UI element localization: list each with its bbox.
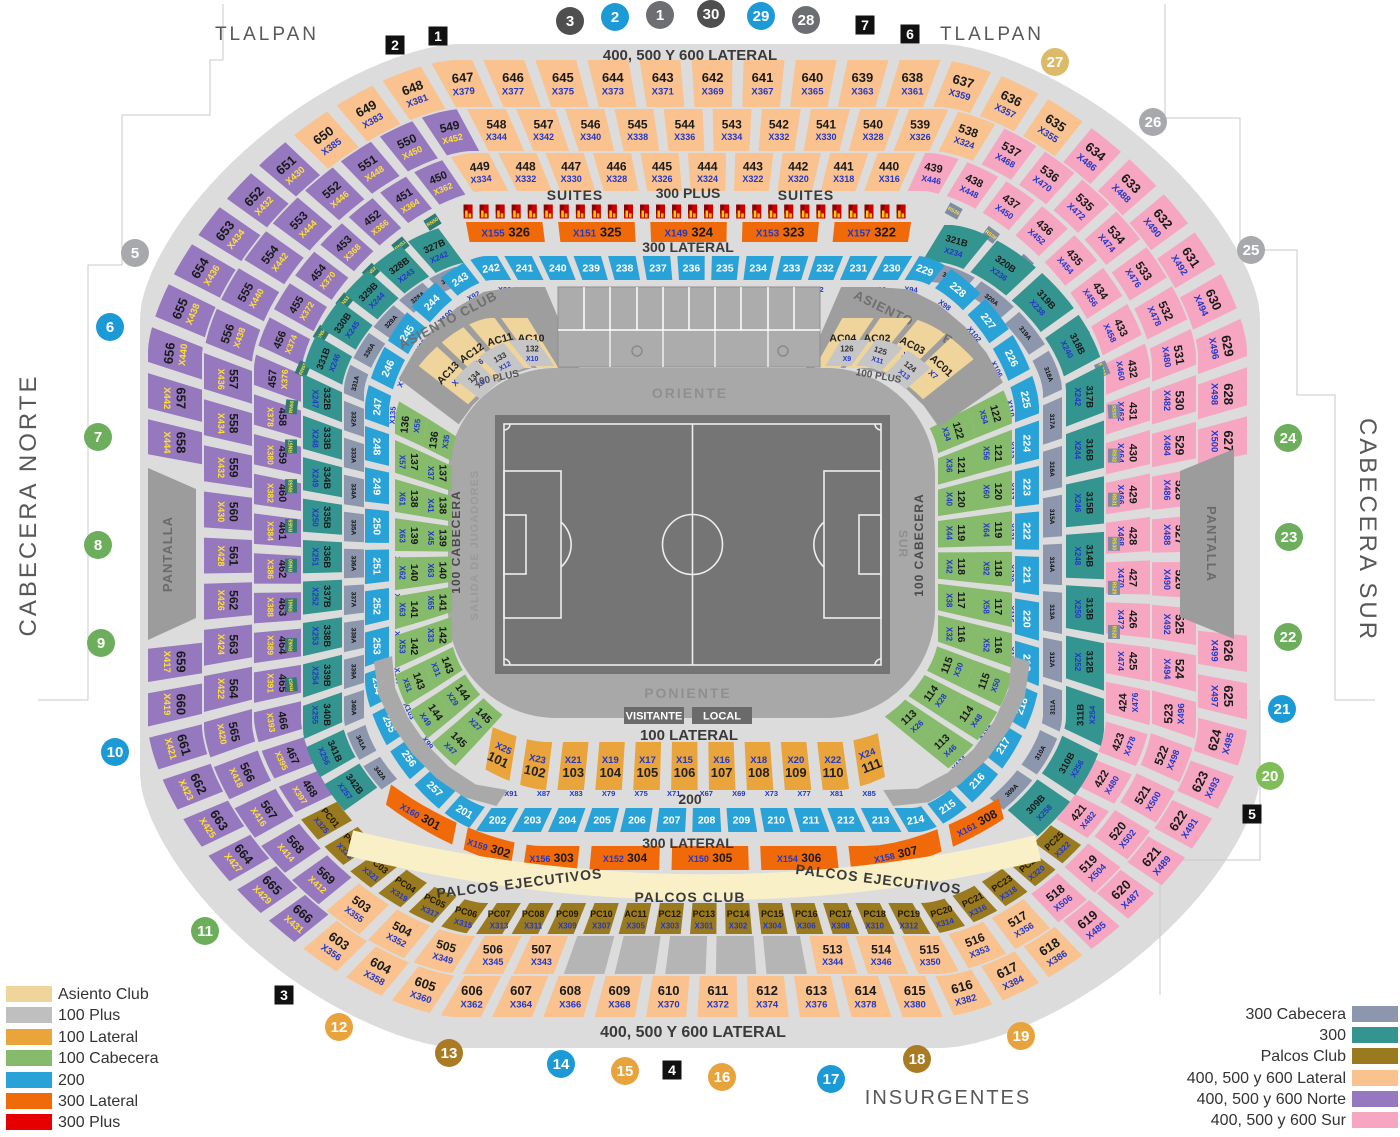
svg-text:X492: X492 [1162, 614, 1172, 635]
svg-text:X490: X490 [1162, 569, 1172, 590]
svg-text:2: 2 [611, 9, 619, 26]
svg-text:426: 426 [1127, 610, 1139, 628]
svg-text:X246: X246 [1073, 494, 1082, 513]
svg-text:RS33: RS33 [1110, 405, 1117, 418]
svg-text:X55: X55 [412, 418, 423, 434]
svg-text:PALCOS CLUB: PALCOS CLUB [634, 889, 745, 905]
svg-text:X362: X362 [460, 999, 482, 1011]
svg-text:X336: X336 [674, 132, 695, 142]
svg-text:X364: X364 [510, 1000, 533, 1011]
svg-text:CABECERA NORTE: CABECERA NORTE [15, 374, 42, 637]
svg-text:X367: X367 [751, 87, 773, 98]
svg-text:X328: X328 [606, 174, 627, 184]
svg-text:249: 249 [370, 478, 382, 496]
svg-text:X308: X308 [831, 922, 850, 931]
svg-text:140: 140 [437, 562, 449, 580]
svg-text:400, 500 y 600 Sur: 400, 500 y 600 Sur [1211, 1112, 1347, 1129]
svg-text:210: 210 [767, 815, 785, 827]
svg-text:3: 3 [280, 987, 288, 1003]
svg-text:X322: X322 [742, 174, 763, 184]
svg-text:233: 233 [783, 263, 801, 275]
svg-text:20: 20 [1262, 768, 1279, 785]
svg-text:PC15: PC15 [761, 909, 784, 919]
svg-text:440: 440 [879, 160, 899, 174]
svg-text:540: 540 [863, 118, 883, 132]
svg-text:608: 608 [559, 983, 581, 998]
svg-text:314A: 314A [1048, 557, 1055, 573]
svg-text:X37: X37 [426, 466, 435, 481]
svg-text:544: 544 [675, 118, 695, 132]
svg-text:106: 106 [674, 765, 696, 780]
svg-text:224: 224 [1020, 435, 1032, 453]
svg-text:X306: X306 [797, 922, 816, 931]
svg-text:X488: X488 [1162, 524, 1172, 545]
svg-text:507: 507 [531, 943, 551, 957]
svg-text:547: 547 [533, 118, 553, 132]
svg-text:314B: 314B [1084, 545, 1095, 568]
svg-text:X85: X85 [862, 789, 875, 798]
svg-text:X384: X384 [266, 521, 276, 541]
svg-text:X44: X44 [945, 526, 954, 541]
svg-text:339A: 339A [350, 664, 357, 680]
svg-text:X77: X77 [797, 789, 810, 798]
svg-text:300: 300 [1319, 1027, 1346, 1044]
svg-text:223: 223 [1020, 478, 1032, 496]
svg-text:333A: 333A [350, 448, 357, 464]
svg-text:542: 542 [769, 118, 789, 132]
svg-text:109: 109 [785, 765, 807, 780]
svg-text:X330: X330 [561, 174, 582, 184]
svg-text:X92: X92 [982, 561, 991, 576]
svg-text:222: 222 [1020, 522, 1032, 540]
svg-text:200: 200 [58, 1072, 85, 1089]
svg-text:X302: X302 [729, 922, 748, 931]
svg-text:427: 427 [1127, 569, 1139, 587]
svg-text:X81: X81 [830, 789, 843, 798]
svg-text:231: 231 [850, 263, 868, 275]
svg-text:431: 431 [1127, 402, 1139, 420]
svg-text:221: 221 [1020, 566, 1032, 584]
svg-text:X247: X247 [311, 390, 320, 409]
svg-text:X436: X436 [216, 369, 226, 390]
svg-text:136: 136 [398, 415, 412, 434]
svg-text:X250: X250 [311, 508, 320, 527]
svg-text:X53: X53 [398, 639, 407, 654]
svg-text:2: 2 [391, 37, 399, 53]
svg-text:X375: X375 [552, 87, 575, 98]
svg-text:7: 7 [861, 17, 869, 33]
svg-text:445: 445 [652, 160, 672, 174]
svg-text:247: 247 [371, 397, 385, 416]
svg-text:X342: X342 [533, 132, 554, 142]
svg-text:643: 643 [652, 70, 674, 85]
svg-text:232: 232 [816, 263, 834, 275]
svg-text:X330: X330 [815, 132, 836, 142]
svg-text:312B: 312B [1084, 651, 1095, 674]
svg-text:PC08: PC08 [522, 909, 545, 919]
svg-text:300 LATERAL: 300 LATERAL [642, 835, 734, 851]
svg-text:X332: X332 [515, 174, 536, 184]
svg-text:657: 657 [174, 387, 189, 409]
svg-text:24: 24 [1280, 430, 1297, 447]
svg-text:12: 12 [331, 1019, 348, 1036]
svg-text:28: 28 [798, 12, 815, 29]
svg-text:PONIENTE: PONIENTE [644, 685, 732, 701]
svg-text:235: 235 [716, 263, 734, 275]
svg-text:563: 563 [227, 634, 241, 654]
svg-text:PC12: PC12 [658, 909, 681, 919]
svg-text:449: 449 [469, 159, 491, 175]
svg-text:626: 626 [1221, 640, 1236, 662]
svg-text:116: 116 [992, 637, 1004, 654]
svg-text:27: 27 [1047, 54, 1064, 71]
svg-text:X252: X252 [1073, 653, 1082, 672]
svg-text:639: 639 [852, 70, 874, 85]
svg-text:110: 110 [822, 765, 843, 780]
svg-text:100 Plus: 100 Plus [58, 1007, 120, 1024]
svg-text:X63: X63 [398, 602, 407, 617]
svg-text:562: 562 [227, 590, 241, 610]
svg-text:208: 208 [698, 815, 716, 827]
svg-text:642: 642 [702, 70, 724, 85]
svg-text:100 LATERAL: 100 LATERAL [640, 727, 738, 744]
svg-text:Palcos Club: Palcos Club [1261, 1048, 1346, 1065]
svg-text:AC11: AC11 [624, 909, 647, 919]
svg-text:PC07: PC07 [488, 909, 511, 919]
svg-text:RN62: RN62 [289, 638, 295, 651]
svg-text:200: 200 [678, 791, 702, 807]
svg-text:X248: X248 [1073, 547, 1082, 566]
svg-text:X426: X426 [216, 590, 226, 611]
svg-text:X442: X442 [161, 387, 172, 409]
svg-text:557: 557 [227, 369, 241, 389]
svg-text:X312: X312 [899, 922, 918, 931]
svg-text:117: 117 [955, 592, 967, 609]
svg-text:645: 645 [552, 70, 574, 85]
svg-text:PANTALLA: PANTALLA [1204, 506, 1219, 582]
svg-text:121: 121 [992, 444, 1004, 462]
svg-text:400, 500 y 600 Norte: 400, 500 y 600 Norte [1197, 1091, 1347, 1108]
svg-text:530: 530 [1173, 390, 1187, 410]
svg-text:230: 230 [883, 263, 901, 275]
svg-text:X33: X33 [426, 628, 435, 643]
svg-text:X150 305: X150 305 [688, 851, 733, 865]
svg-text:338B: 338B [321, 625, 332, 648]
svg-text:513: 513 [823, 943, 843, 957]
svg-text:524: 524 [1173, 659, 1187, 679]
svg-text:PC18: PC18 [863, 909, 886, 919]
svg-text:X324: X324 [697, 174, 718, 184]
svg-text:238: 238 [616, 263, 634, 275]
svg-text:16: 16 [714, 1069, 731, 1086]
svg-text:X251: X251 [311, 548, 320, 567]
svg-text:X242: X242 [1073, 387, 1082, 406]
svg-text:242: 242 [482, 262, 501, 276]
svg-text:PC19: PC19 [898, 909, 921, 919]
svg-text:220: 220 [1020, 610, 1032, 628]
svg-text:400, 500 y 600 Lateral: 400, 500 y 600 Lateral [1187, 1070, 1346, 1087]
svg-text:X500: X500 [1209, 430, 1220, 452]
svg-text:332A: 332A [350, 411, 357, 427]
svg-text:X62: X62 [398, 565, 407, 580]
svg-text:X388: X388 [266, 597, 276, 617]
svg-text:X73: X73 [765, 789, 778, 798]
svg-text:239: 239 [582, 263, 600, 275]
svg-text:5: 5 [131, 245, 139, 262]
svg-text:606: 606 [461, 983, 483, 999]
svg-text:336B: 336B [321, 546, 332, 569]
svg-text:X430: X430 [216, 501, 226, 522]
svg-text:8: 8 [94, 537, 102, 554]
svg-text:313B: 313B [1084, 598, 1095, 621]
svg-text:X389: X389 [266, 635, 276, 655]
svg-text:X305: X305 [626, 922, 645, 931]
svg-text:248: 248 [370, 438, 382, 456]
svg-text:447: 447 [561, 160, 581, 174]
svg-text:118: 118 [992, 560, 1004, 577]
svg-text:609: 609 [609, 983, 631, 998]
svg-text:117: 117 [992, 598, 1004, 615]
svg-text:311B: 311B [1075, 704, 1086, 726]
svg-text:X254: X254 [311, 666, 320, 685]
svg-text:11: 11 [197, 923, 213, 940]
svg-text:559: 559 [227, 458, 241, 478]
svg-text:4: 4 [668, 1062, 676, 1078]
svg-text:X382: X382 [266, 483, 276, 503]
svg-text:X391: X391 [266, 673, 276, 693]
svg-text:SALIDA DE JUGADORES: SALIDA DE JUGADORES [469, 470, 481, 621]
svg-text:136: 136 [427, 430, 441, 449]
svg-text:205: 205 [593, 815, 611, 827]
svg-text:3: 3 [566, 13, 574, 30]
svg-text:X378: X378 [854, 1000, 876, 1011]
svg-text:X303: X303 [660, 922, 679, 931]
svg-text:X254: X254 [1088, 705, 1097, 724]
svg-text:PC17: PC17 [829, 909, 852, 919]
svg-text:333B: 333B [321, 427, 332, 450]
svg-text:250: 250 [370, 518, 382, 536]
svg-text:138: 138 [437, 497, 449, 515]
svg-text:X368: X368 [608, 1000, 630, 1011]
svg-text:X346: X346 [871, 957, 892, 967]
svg-text:X371: X371 [652, 87, 675, 98]
svg-text:X365: X365 [801, 87, 824, 98]
svg-text:X332: X332 [768, 132, 789, 142]
svg-text:337B: 337B [321, 585, 332, 608]
svg-text:X252: X252 [311, 587, 320, 606]
svg-text:100 CABECERA: 100 CABECERA [912, 493, 926, 596]
svg-text:539: 539 [910, 117, 930, 131]
svg-text:X61: X61 [398, 492, 407, 507]
svg-text:241: 241 [516, 263, 534, 275]
svg-text:X343: X343 [531, 957, 552, 967]
svg-text:514: 514 [871, 943, 891, 957]
svg-text:142: 142 [437, 626, 449, 644]
svg-text:430: 430 [1127, 444, 1139, 462]
svg-text:X250: X250 [1073, 600, 1082, 619]
svg-text:X338: X338 [627, 132, 648, 142]
svg-text:INSURGENTES: INSURGENTES [865, 1087, 1031, 1109]
svg-text:RS31: RS31 [1111, 493, 1117, 506]
svg-text:X369: X369 [702, 87, 724, 98]
svg-text:X345: X345 [482, 957, 503, 967]
svg-text:X326: X326 [910, 132, 931, 142]
svg-text:19: 19 [1013, 1028, 1030, 1045]
svg-text:X152 304: X152 304 [603, 851, 648, 865]
svg-text:315B: 315B [1084, 492, 1095, 515]
svg-text:253: 253 [370, 637, 382, 655]
svg-text:448: 448 [516, 160, 536, 174]
svg-text:18: 18 [909, 1051, 926, 1068]
svg-text:X344: X344 [486, 132, 507, 142]
svg-text:PC16: PC16 [795, 909, 818, 919]
svg-text:X87: X87 [537, 789, 550, 798]
svg-text:658: 658 [174, 432, 189, 454]
svg-text:X374: X374 [756, 1000, 779, 1011]
svg-text:400, 500 Y 600 LATERAL: 400, 500 Y 600 LATERAL [603, 47, 777, 64]
svg-text:340B: 340B [321, 703, 332, 726]
svg-text:TLALPAN: TLALPAN [215, 24, 319, 45]
svg-text:142: 142 [408, 638, 420, 656]
svg-text:315A: 315A [1048, 509, 1055, 525]
svg-text:X316: X316 [879, 174, 900, 184]
svg-text:X32: X32 [945, 627, 954, 642]
svg-text:X361: X361 [901, 87, 924, 98]
svg-text:Asiento Club: Asiento Club [58, 986, 149, 1003]
svg-text:300 Plus: 300 Plus [58, 1114, 120, 1131]
svg-text:X378: X378 [266, 407, 276, 427]
svg-text:X40: X40 [945, 492, 954, 507]
svg-text:240: 240 [549, 263, 567, 275]
svg-text:X376: X376 [279, 369, 290, 390]
svg-text:203: 203 [524, 815, 542, 827]
svg-text:429: 429 [1127, 485, 1139, 503]
svg-text:105: 105 [637, 765, 659, 780]
svg-text:640: 640 [802, 70, 824, 85]
svg-text:RS29: RS29 [1111, 582, 1117, 595]
svg-text:RN59: RN59 [289, 519, 295, 532]
svg-text:300 Lateral: 300 Lateral [58, 1093, 138, 1110]
svg-text:29: 29 [753, 8, 770, 25]
svg-text:X434: X434 [216, 413, 226, 434]
svg-text:120: 120 [955, 490, 967, 508]
svg-text:RN58: RN58 [289, 480, 295, 493]
svg-text:207: 207 [663, 815, 681, 827]
svg-text:107: 107 [711, 765, 733, 780]
svg-text:132: 132 [526, 345, 540, 354]
svg-text:313A: 313A [1048, 604, 1055, 620]
svg-text:137: 137 [408, 453, 420, 471]
svg-text:548: 548 [486, 118, 506, 132]
svg-text:120: 120 [992, 483, 1004, 501]
svg-text:1: 1 [656, 7, 664, 24]
svg-text:316B: 316B [1084, 438, 1095, 461]
svg-text:202: 202 [489, 814, 507, 826]
svg-text:X52: X52 [982, 638, 991, 653]
svg-text:607: 607 [510, 983, 532, 998]
svg-text:ORIENTE: ORIENTE [652, 385, 728, 401]
svg-text:613: 613 [805, 983, 827, 998]
svg-text:X377: X377 [502, 87, 524, 98]
svg-text:X363: X363 [851, 87, 873, 98]
svg-text:X344: X344 [822, 957, 843, 967]
svg-text:647: 647 [451, 69, 474, 86]
svg-text:139: 139 [408, 527, 420, 545]
svg-text:RS28: RS28 [1111, 626, 1117, 639]
svg-text:X499: X499 [1209, 640, 1220, 662]
svg-text:118: 118 [955, 558, 967, 575]
svg-text:X310: X310 [865, 922, 884, 931]
svg-text:SUITES: SUITES [547, 187, 604, 203]
svg-text:23: 23 [1281, 529, 1298, 546]
svg-text:X41: X41 [426, 498, 435, 513]
svg-text:444: 444 [697, 160, 717, 174]
svg-text:457: 457 [267, 369, 280, 388]
svg-text:X432: X432 [216, 457, 226, 478]
svg-text:529: 529 [1173, 435, 1187, 455]
svg-text:X386: X386 [266, 559, 276, 579]
svg-text:X370: X370 [658, 1000, 680, 1011]
svg-text:541: 541 [816, 118, 836, 132]
svg-text:LOCAL: LOCAL [703, 711, 741, 723]
svg-text:X69: X69 [732, 789, 745, 798]
svg-text:338A: 338A [350, 628, 357, 644]
svg-text:X9: X9 [843, 356, 852, 363]
svg-text:5: 5 [1248, 806, 1256, 822]
svg-text:119: 119 [992, 521, 1004, 538]
svg-text:14: 14 [553, 1056, 570, 1073]
svg-text:15: 15 [617, 1063, 634, 1080]
svg-text:104: 104 [599, 765, 621, 780]
svg-text:139: 139 [437, 529, 449, 547]
svg-text:X376: X376 [805, 1000, 827, 1011]
svg-text:515: 515 [919, 942, 940, 957]
svg-text:138: 138 [408, 490, 420, 508]
svg-text:237: 237 [649, 263, 667, 275]
svg-text:X309: X309 [558, 922, 577, 931]
svg-text:X318: X318 [833, 174, 854, 184]
svg-text:X373: X373 [602, 87, 624, 98]
svg-text:X253: X253 [311, 627, 320, 646]
svg-text:7: 7 [94, 429, 102, 446]
svg-text:X307: X307 [592, 922, 611, 931]
svg-text:PANTALLA: PANTALLA [160, 516, 175, 592]
svg-text:X311: X311 [524, 922, 543, 931]
svg-text:PC13: PC13 [693, 909, 716, 919]
svg-text:X45: X45 [426, 531, 435, 546]
svg-text:X476: X476 [1130, 692, 1140, 712]
svg-text:RN60: RN60 [289, 559, 295, 572]
svg-text:X63: X63 [398, 529, 407, 544]
svg-text:316A: 316A [1048, 461, 1055, 477]
svg-text:252: 252 [370, 597, 382, 615]
svg-text:300 PLUS: 300 PLUS [656, 185, 721, 201]
svg-text:627: 627 [1221, 430, 1236, 452]
svg-text:PC10: PC10 [590, 909, 613, 919]
svg-text:X64: X64 [982, 523, 991, 538]
svg-text:546: 546 [581, 118, 601, 132]
svg-text:659: 659 [174, 651, 189, 673]
svg-text:656: 656 [161, 342, 178, 365]
svg-text:X79: X79 [602, 789, 615, 798]
svg-text:340A: 340A [350, 700, 357, 716]
svg-text:317B: 317B [1084, 385, 1095, 408]
svg-text:126: 126 [840, 345, 854, 354]
svg-text:X474: X474 [1116, 651, 1126, 671]
svg-text:206: 206 [628, 815, 646, 827]
svg-text:443: 443 [743, 160, 763, 174]
svg-text:523: 523 [1161, 703, 1175, 724]
